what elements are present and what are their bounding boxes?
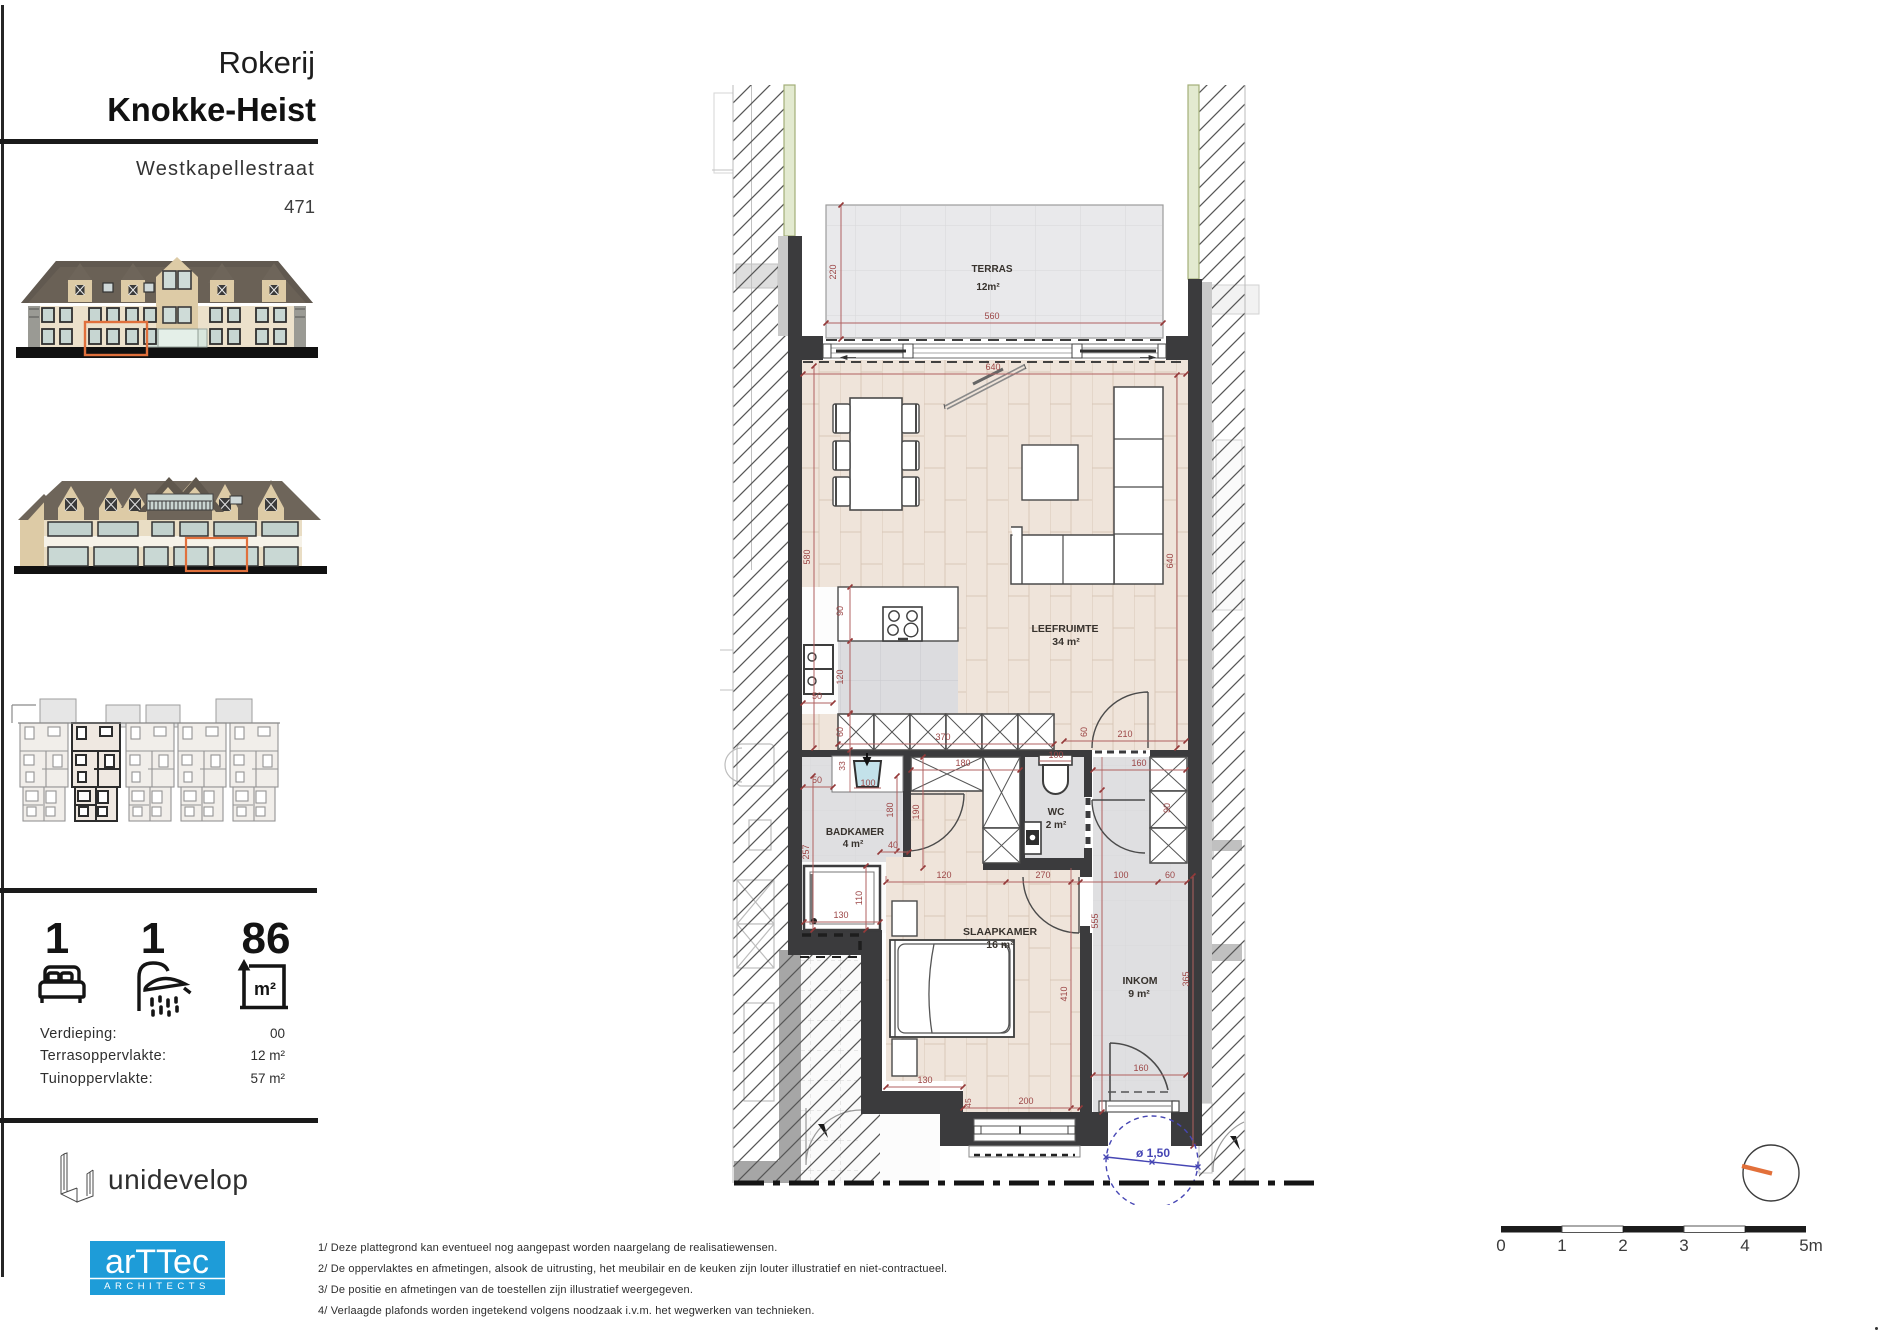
svg-text:130: 130 — [917, 1075, 932, 1085]
svg-text:LEEFRUIMTE: LEEFRUIMTE — [1031, 623, 1098, 635]
svg-text:60: 60 — [1165, 870, 1175, 880]
svg-text:ø 1,50: ø 1,50 — [1136, 1146, 1170, 1160]
svg-text:200: 200 — [1018, 1096, 1033, 1106]
svg-text:5m: 5m — [1799, 1236, 1823, 1254]
svg-text:370: 370 — [935, 732, 950, 742]
svg-text:60: 60 — [1079, 727, 1089, 737]
svg-text:640: 640 — [1165, 553, 1175, 568]
svg-text:33: 33 — [837, 761, 847, 771]
svg-text:100: 100 — [1048, 750, 1063, 760]
svg-text:100: 100 — [1113, 870, 1128, 880]
svg-text:560: 560 — [984, 311, 999, 321]
svg-text:TERRAS: TERRAS — [971, 264, 1012, 275]
svg-text:90: 90 — [835, 606, 845, 616]
svg-text:180: 180 — [955, 758, 970, 768]
svg-text:110: 110 — [854, 891, 864, 905]
svg-text:arTTec: arTTec — [105, 1243, 209, 1281]
svg-text:120: 120 — [835, 669, 845, 684]
svg-text:WC: WC — [1048, 807, 1065, 818]
svg-text:2: 2 — [1618, 1236, 1627, 1254]
svg-text:4: 4 — [1740, 1236, 1749, 1254]
svg-text:90: 90 — [1162, 803, 1172, 813]
svg-text:16 m²: 16 m² — [986, 939, 1014, 951]
svg-text:130: 130 — [833, 910, 848, 920]
svg-text:180: 180 — [885, 802, 895, 817]
svg-text:270: 270 — [1035, 870, 1050, 880]
svg-text:365: 365 — [1181, 971, 1191, 986]
svg-text:0: 0 — [1496, 1236, 1505, 1254]
svg-text:210: 210 — [1117, 729, 1132, 739]
svg-text:4 m²: 4 m² — [843, 839, 864, 850]
svg-text:34 m²: 34 m² — [1052, 636, 1080, 648]
svg-text:45: 45 — [963, 1098, 973, 1108]
svg-text:9 m²: 9 m² — [1128, 988, 1150, 1000]
svg-text:m²: m² — [254, 979, 276, 999]
svg-text:555: 555 — [1090, 913, 1100, 928]
svg-text:60: 60 — [835, 727, 845, 737]
svg-text:2 m²: 2 m² — [1046, 820, 1067, 831]
svg-text:190: 190 — [911, 804, 921, 819]
svg-text:640: 640 — [985, 362, 1000, 372]
svg-text:12m²: 12m² — [976, 282, 1000, 293]
svg-text:1: 1 — [45, 914, 69, 963]
svg-text:3: 3 — [1679, 1236, 1688, 1254]
svg-text:1: 1 — [1557, 1236, 1566, 1254]
svg-text:160: 160 — [1131, 758, 1146, 768]
svg-text:160: 160 — [1133, 1063, 1148, 1073]
svg-text:BADKAMER: BADKAMER — [826, 827, 885, 838]
svg-text:100: 100 — [860, 778, 875, 788]
svg-text:580: 580 — [802, 549, 812, 564]
svg-text:SLAAPKAMER: SLAAPKAMER — [963, 926, 1038, 938]
svg-text:unidevelop: unidevelop — [108, 1164, 248, 1195]
svg-text:1: 1 — [141, 914, 165, 963]
svg-text:INKOM: INKOM — [1123, 975, 1158, 987]
svg-text:40: 40 — [888, 840, 898, 850]
svg-text:257: 257 — [801, 844, 811, 859]
svg-text:120: 120 — [936, 870, 951, 880]
svg-text:50: 50 — [812, 691, 822, 701]
svg-text:86: 86 — [242, 914, 291, 963]
svg-text:ARCHITECTS: ARCHITECTS — [104, 1281, 210, 1292]
svg-text:220: 220 — [828, 264, 838, 279]
svg-text:410: 410 — [1059, 986, 1069, 1001]
